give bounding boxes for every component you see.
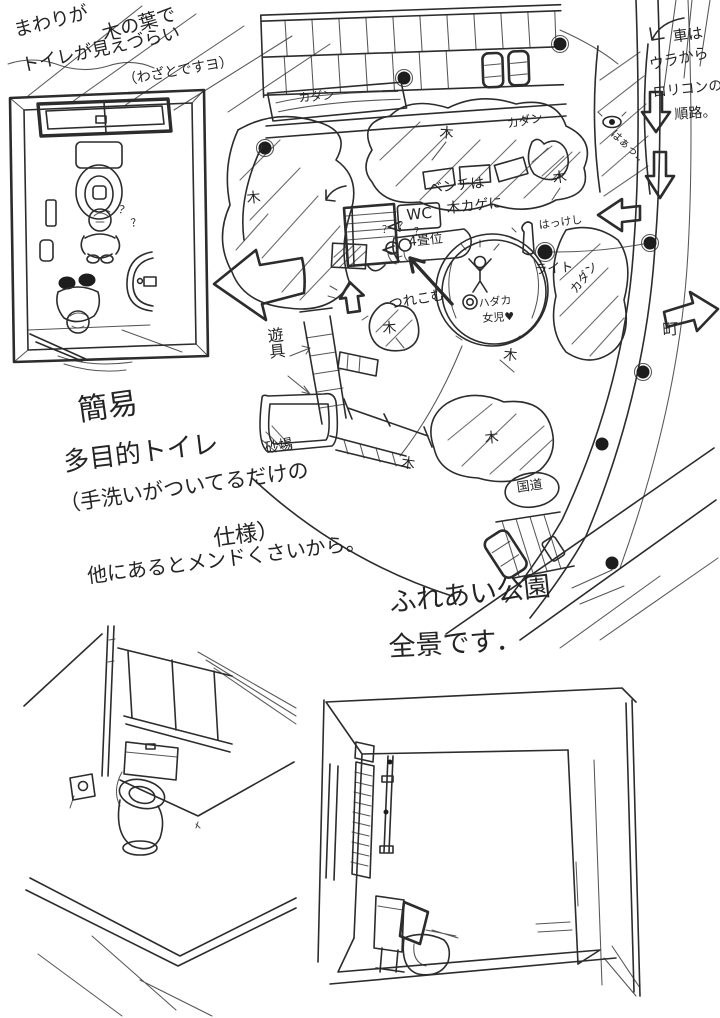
car-on-road — [482, 528, 529, 580]
parking-lot — [261, 5, 564, 97]
wall-pipe — [380, 756, 393, 853]
wc-label: WC — [406, 206, 433, 224]
question-scrawl: ？ — [382, 226, 392, 237]
toilet-paper-roll — [70, 774, 95, 808]
floorplan-toilet-tank — [76, 142, 122, 168]
child-figure — [81, 209, 119, 263]
fountain-note-line2: 女児♥ — [482, 311, 515, 325]
park-caption-line2: 全景です． — [388, 627, 523, 662]
flowerbed-strip — [267, 82, 406, 121]
light-label: ライト — [534, 261, 574, 277]
toilet-perspective-panel — [24, 626, 296, 1016]
sink — [127, 252, 156, 311]
tree-label: 木 — [246, 191, 261, 207]
flowerbed-label: カダン — [298, 89, 335, 105]
toilet-perspective — [116, 742, 178, 855]
crouching-figure — [57, 274, 99, 333]
street-lights — [257, 36, 659, 570]
tree-label: 木 — [502, 348, 517, 364]
dash-marks — [328, 286, 368, 320]
ladder — [330, 436, 410, 468]
fountain — [436, 234, 548, 346]
tree-label: 木 — [552, 170, 568, 186]
question-scrawl: ？ — [398, 222, 408, 233]
toilet-floorplan-panel — [10, 90, 208, 371]
town-label: 町 — [662, 321, 679, 339]
seesaw — [344, 399, 432, 447]
entry-arrow-icon — [326, 186, 346, 201]
up-arrow-icon — [338, 280, 366, 313]
question-scrawl: ？ — [130, 216, 142, 229]
tree-label: 木 — [484, 431, 499, 447]
highway — [446, 448, 718, 648]
crosswalk — [496, 512, 574, 578]
playground-label: 遊具 — [264, 326, 284, 360]
question-scrawl: ？ — [118, 204, 131, 218]
toilet-spec-line1: 簡易 — [76, 388, 140, 428]
parked-car — [508, 51, 529, 86]
window-perspective — [118, 648, 232, 752]
room-perspective-panel — [318, 688, 640, 996]
wall-vent — [326, 742, 374, 880]
floorplan-toilet-bowl — [76, 165, 122, 219]
tree-label: 木 — [382, 321, 397, 337]
sketch-page: まわりが 木の葉で トイレが見えづらい （わざとですヨ） 車は ウラから ロリコ… — [0, 0, 720, 1018]
tree-label: 木 — [400, 456, 416, 472]
car-route-note-line4: 順路。 — [674, 105, 717, 123]
big-left-arrow-icon — [214, 250, 305, 320]
floor-edge — [26, 878, 296, 966]
left-arrow-icon — [598, 199, 640, 231]
question-scrawl: ？ — [414, 228, 424, 239]
parked-car — [482, 53, 503, 88]
tree-label: 木 — [439, 126, 454, 142]
